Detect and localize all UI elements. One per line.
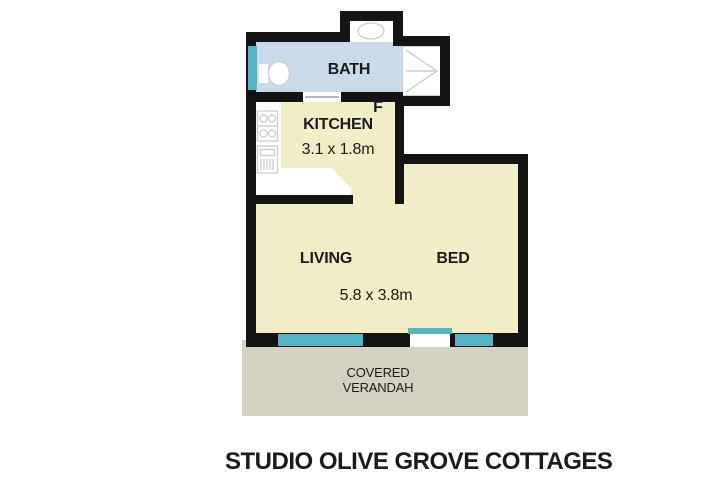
kitchen-label: KITCHEN bbox=[288, 116, 388, 134]
living-label: LIVING bbox=[276, 250, 376, 268]
shower-icon bbox=[406, 50, 437, 92]
cooktop-icon bbox=[258, 111, 278, 141]
fridge-label: F bbox=[366, 99, 390, 117]
bed-label: BED bbox=[403, 250, 503, 268]
basin-icon bbox=[358, 23, 384, 39]
bath-label: BATH bbox=[309, 61, 389, 79]
verandah-label-line2: VERANDAH bbox=[278, 381, 478, 396]
oven-icon bbox=[258, 146, 278, 173]
verandah-label: COVERED VERANDAH bbox=[278, 366, 478, 395]
floorplan: BATH F KITCHEN 3.1 x 1.8m LIVING BED 5.8… bbox=[0, 0, 720, 480]
main-dimensions: 5.8 x 3.8m bbox=[316, 287, 436, 305]
verandah-label-line1: COVERED bbox=[278, 366, 478, 381]
page-title: STUDIO OLIVE GROVE COTTAGES bbox=[225, 448, 545, 476]
toilet-icon bbox=[258, 62, 290, 86]
kitchen-dimensions: 3.1 x 1.8m bbox=[288, 141, 388, 159]
